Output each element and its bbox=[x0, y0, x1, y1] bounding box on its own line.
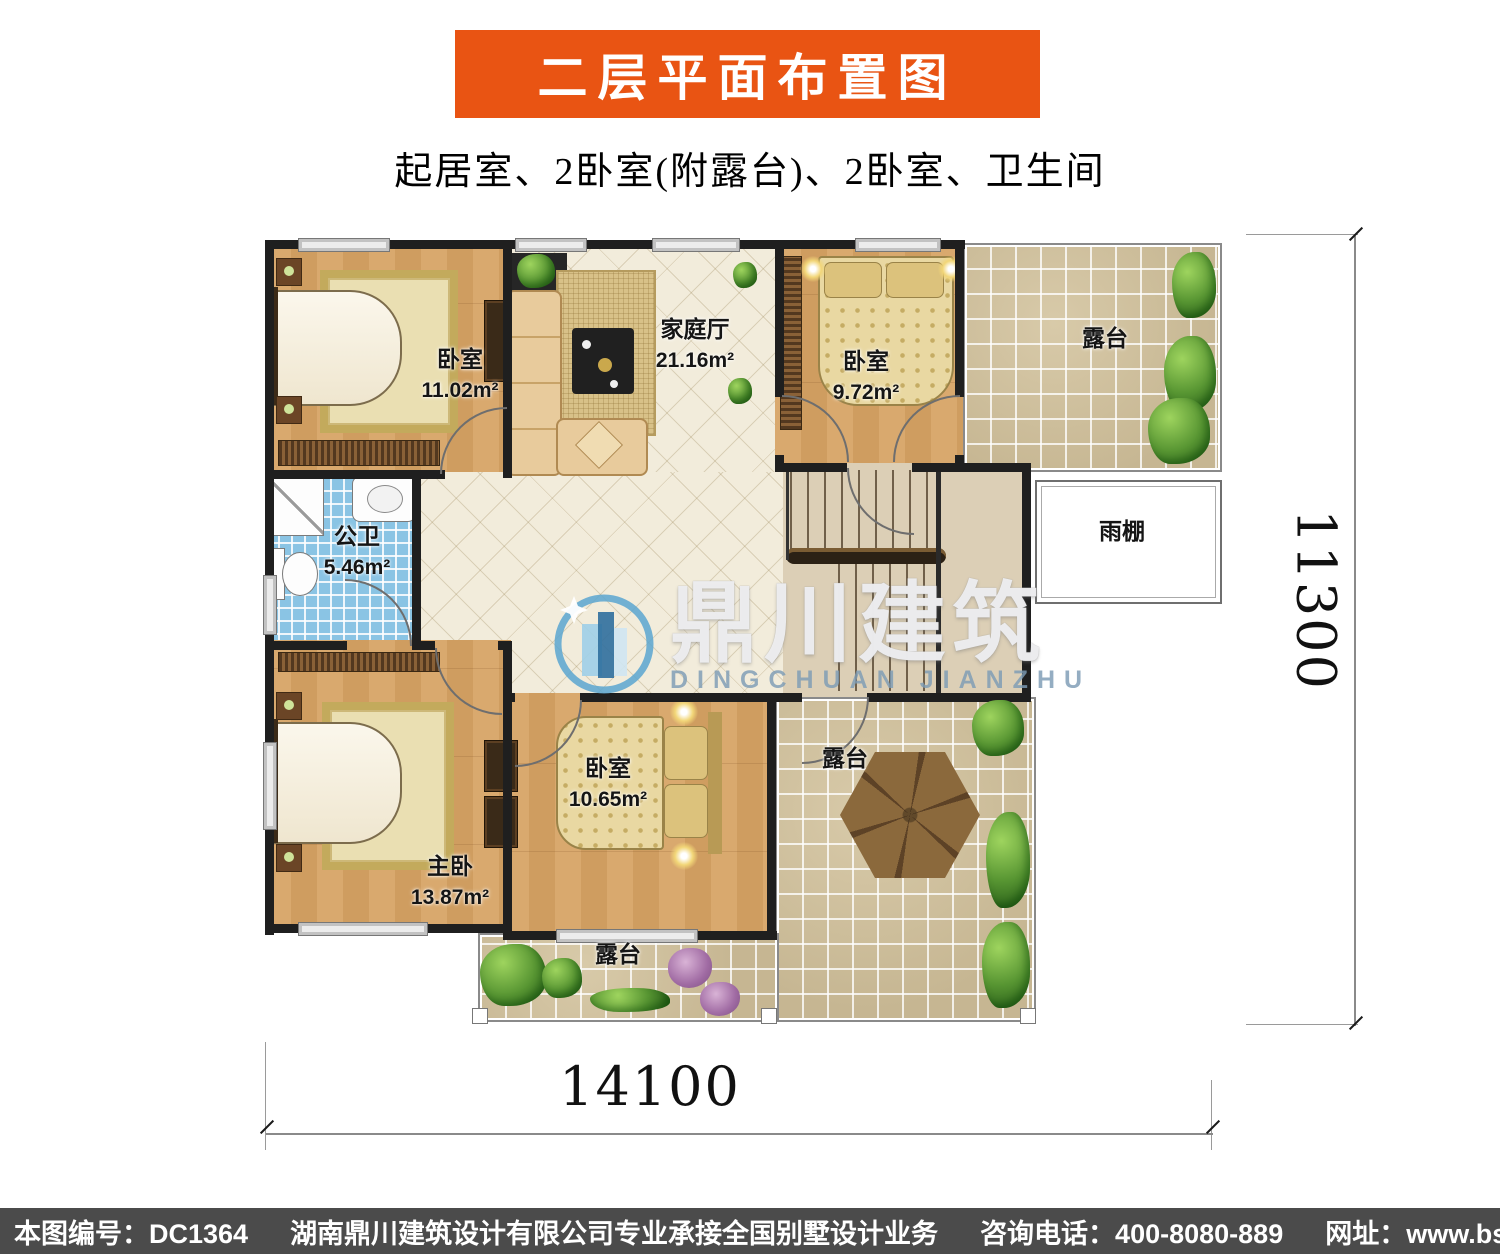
nightstand bbox=[276, 396, 302, 424]
pillow bbox=[664, 784, 708, 838]
room-label-terrace-bottom: 露台 bbox=[595, 938, 641, 971]
stair-flight-lower bbox=[838, 564, 938, 691]
floor-plan: 卧室 11.02m² 家庭厅 21.16m² 卧室 9.72m² 公卫 5.46… bbox=[0, 0, 1500, 1254]
wall bbox=[912, 463, 1031, 472]
stair-edge bbox=[786, 470, 789, 560]
lamp bbox=[800, 256, 826, 282]
room-name: 卧室 bbox=[569, 752, 647, 785]
room-label-terrace-top-right: 露台 bbox=[1082, 322, 1128, 355]
wall bbox=[783, 693, 802, 702]
window bbox=[298, 238, 390, 252]
lamp bbox=[670, 698, 698, 726]
sink bbox=[352, 476, 416, 522]
plant bbox=[517, 254, 555, 288]
room-label-terrace-bottom-right: 露台 bbox=[822, 742, 868, 775]
stair-stringer bbox=[936, 466, 941, 699]
room-label-master-bedroom: 主卧 13.87m² bbox=[411, 850, 489, 914]
room-label-bedroom-bottom: 卧室 10.65m² bbox=[569, 752, 647, 816]
plant bbox=[972, 700, 1024, 756]
footer-bar: 本图编号：DC1364 湖南鼎川建筑设计有限公司专业承接全国别墅设计业务 咨询电… bbox=[0, 1208, 1500, 1254]
nightstand bbox=[276, 692, 302, 720]
dimension-line-width bbox=[266, 1133, 1213, 1135]
wall bbox=[412, 472, 421, 650]
room-label-rain-canopy: 雨棚 bbox=[1099, 515, 1145, 548]
room-area: 9.72m² bbox=[833, 378, 900, 408]
wall bbox=[503, 693, 515, 702]
dresser bbox=[278, 440, 440, 466]
page: 二层平面布置图 起居室、2卧室(附露台)、2卧室、卫生间 bbox=[0, 0, 1500, 1254]
plant bbox=[986, 812, 1030, 908]
plant bbox=[733, 262, 757, 288]
plant bbox=[1148, 398, 1210, 464]
bed bbox=[270, 722, 402, 844]
extension-line bbox=[1246, 234, 1358, 235]
stair-handrail bbox=[786, 548, 946, 564]
wardrobe-panel bbox=[484, 740, 518, 792]
dimension-width: 14100 bbox=[559, 1055, 741, 1118]
pillow bbox=[824, 262, 882, 298]
room-name: 露台 bbox=[1082, 322, 1128, 355]
lamp bbox=[670, 842, 698, 870]
dresser bbox=[278, 652, 440, 672]
plant bbox=[480, 944, 546, 1006]
room-name: 卧室 bbox=[421, 343, 498, 376]
plant bbox=[542, 958, 582, 998]
nightstand bbox=[276, 844, 302, 872]
dimension-line-height bbox=[1354, 236, 1356, 1026]
window bbox=[652, 238, 740, 252]
room-area: 21.16m² bbox=[656, 346, 734, 376]
shower bbox=[270, 478, 324, 536]
room-label-family-hall: 家庭厅 21.16m² bbox=[656, 313, 734, 377]
plant bbox=[982, 922, 1030, 1008]
room-name: 露台 bbox=[595, 938, 641, 971]
room-name: 公卫 bbox=[324, 520, 391, 553]
room-label-bedroom-top-right: 卧室 9.72m² bbox=[833, 345, 900, 409]
room-label-bathroom: 公卫 5.46m² bbox=[324, 520, 391, 584]
plant bbox=[590, 988, 670, 1012]
pillow bbox=[664, 726, 708, 780]
plant bbox=[1172, 252, 1216, 318]
window bbox=[515, 238, 587, 252]
nightstand bbox=[276, 258, 302, 286]
room-name: 家庭厅 bbox=[656, 313, 734, 346]
wall bbox=[767, 693, 776, 940]
wall bbox=[775, 240, 784, 397]
extension-line bbox=[1211, 1080, 1212, 1150]
footer-company: 湖南鼎川建筑设计有限公司专业承接全国别墅设计业务 bbox=[290, 1212, 938, 1251]
room-name: 卧室 bbox=[833, 345, 900, 378]
parapet-pier bbox=[472, 1008, 488, 1024]
room-area: 11.02m² bbox=[421, 376, 498, 406]
wall bbox=[503, 641, 512, 940]
footer-website: 网址：www.bstzcs.com bbox=[1325, 1212, 1500, 1251]
bed bbox=[270, 290, 402, 406]
wall bbox=[775, 463, 847, 472]
coffee-table bbox=[572, 328, 634, 394]
room-area: 10.65m² bbox=[569, 785, 647, 815]
room-area: 5.46m² bbox=[324, 553, 391, 583]
toilet bbox=[282, 552, 318, 596]
window bbox=[263, 575, 277, 635]
window bbox=[298, 922, 428, 936]
dimension-height: 11300 bbox=[1285, 509, 1348, 691]
bed-headboard bbox=[708, 712, 722, 854]
wall bbox=[580, 693, 783, 702]
plant bbox=[728, 378, 752, 404]
parapet-pier bbox=[761, 1008, 777, 1024]
footer-phone: 咨询电话：400-8080-889 bbox=[980, 1212, 1283, 1251]
extension-line bbox=[1246, 1024, 1358, 1025]
room-label-bedroom-top-left: 卧室 11.02m² bbox=[421, 343, 498, 407]
wardrobe-panel bbox=[484, 796, 518, 848]
sofa bbox=[506, 290, 562, 476]
room-area: 13.87m² bbox=[411, 883, 489, 913]
wall bbox=[412, 641, 435, 650]
window bbox=[263, 742, 277, 830]
room-name: 露台 bbox=[822, 742, 868, 775]
wall bbox=[265, 641, 347, 650]
parapet-pier bbox=[1020, 1008, 1036, 1024]
room-name: 雨棚 bbox=[1099, 515, 1145, 548]
wall bbox=[955, 240, 964, 397]
pillow bbox=[886, 262, 944, 298]
wall bbox=[1022, 463, 1031, 701]
footer-drawing-no: 本图编号：DC1364 bbox=[14, 1212, 248, 1251]
window bbox=[855, 238, 941, 252]
room-name: 主卧 bbox=[411, 850, 489, 883]
